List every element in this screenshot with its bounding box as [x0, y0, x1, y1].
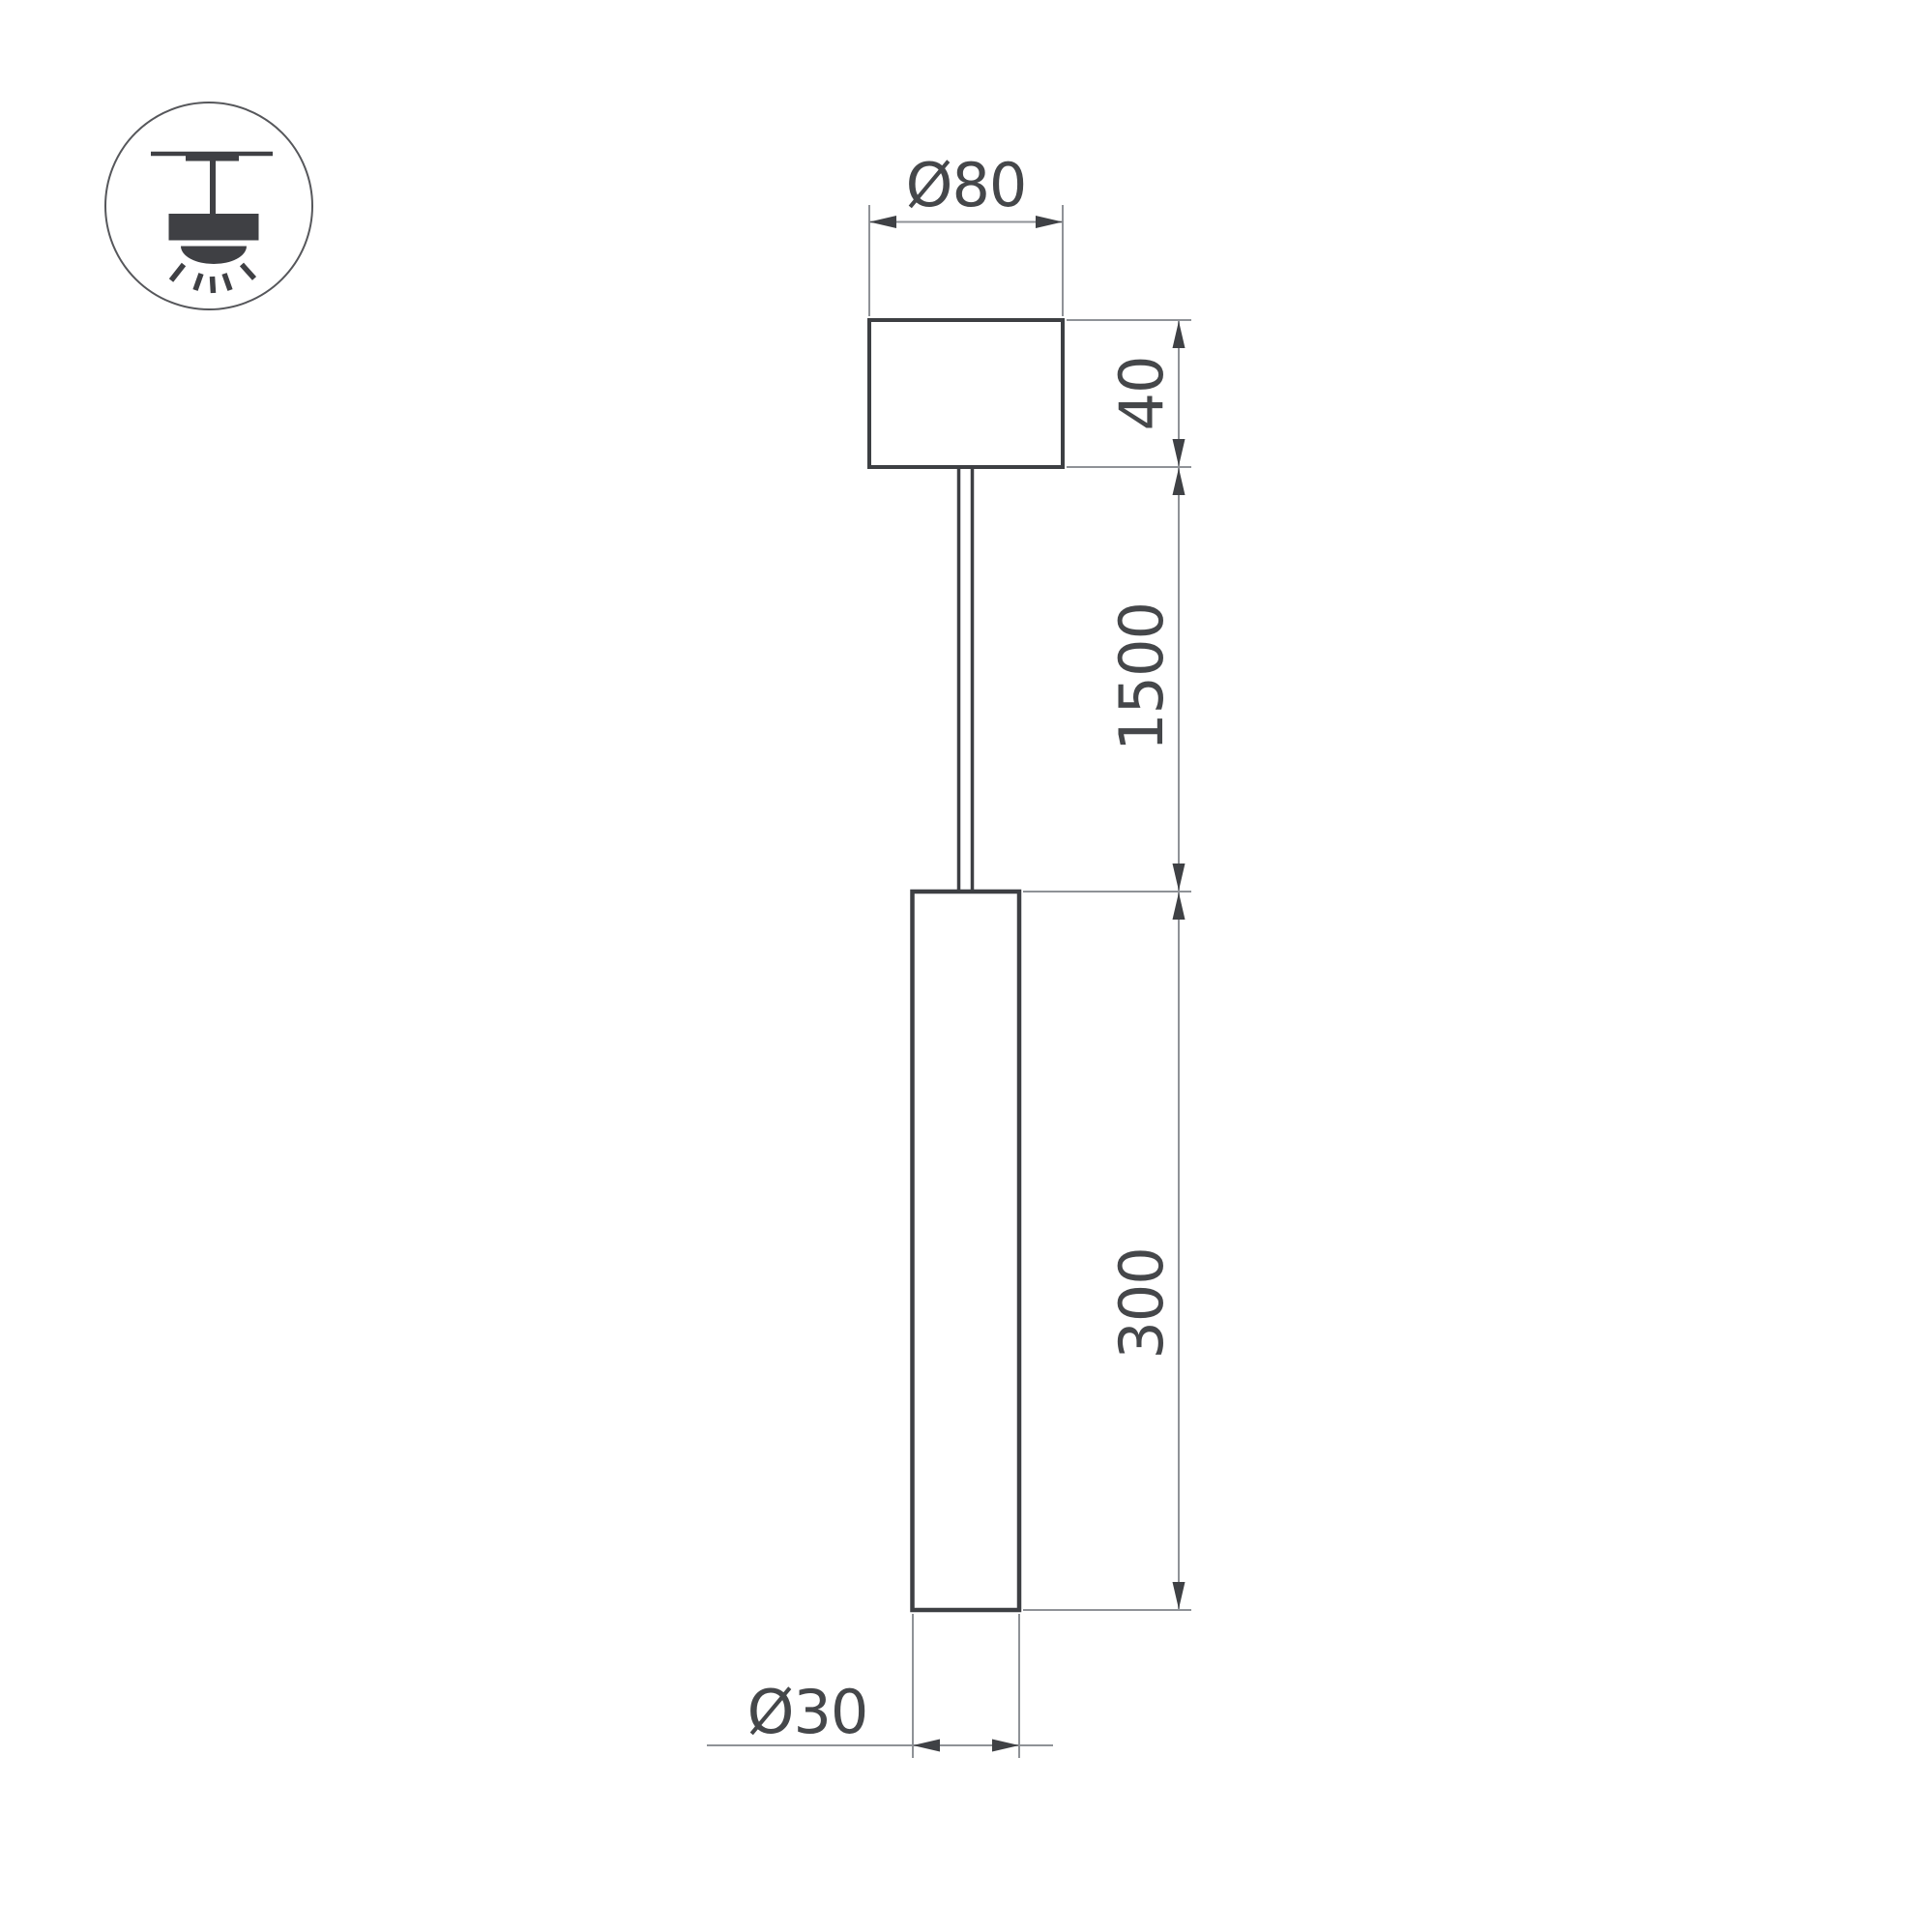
canopy-outline	[869, 320, 1063, 467]
dimension-vertical-chain: 40 1500 300	[1023, 320, 1191, 1610]
canopy-height-label: 40	[1106, 357, 1177, 431]
icon-circle-border	[105, 102, 312, 309]
icon-lamp-body	[169, 214, 259, 241]
ceiling-pendant-mount-icon	[105, 102, 312, 309]
body-diameter-label: Ø30	[747, 1677, 868, 1747]
technical-drawing-canvas: Ø80 40 1500 300 Ø30	[0, 0, 1932, 1932]
arrowhead-up	[1173, 468, 1186, 495]
arrowhead-right	[992, 1740, 1019, 1752]
dimension-canopy-diameter: Ø80	[869, 150, 1063, 316]
arrowhead-right	[1036, 216, 1063, 228]
arrowhead-up	[1173, 321, 1186, 348]
arrowhead-down	[1173, 864, 1186, 891]
fixture-drawing	[869, 320, 1063, 1610]
arrowhead-down	[1173, 439, 1186, 466]
arrowhead-up	[1173, 893, 1186, 920]
arrowhead-left	[869, 216, 896, 228]
dimension-tube-diameter: Ø30	[707, 1614, 1053, 1758]
arrowhead-left	[913, 1740, 940, 1752]
icon-suspension-rod	[210, 158, 216, 216]
canopy-diameter-label: Ø80	[906, 150, 1027, 220]
arrowhead-down	[1173, 1582, 1186, 1609]
lamp-tube-outline	[913, 892, 1020, 1610]
suspension-length-label: 1500	[1106, 602, 1177, 751]
pendant-luminaire-dimension-drawing: Ø80 40 1500 300 Ø30	[0, 0, 1932, 1932]
body-length-label: 300	[1106, 1247, 1177, 1359]
